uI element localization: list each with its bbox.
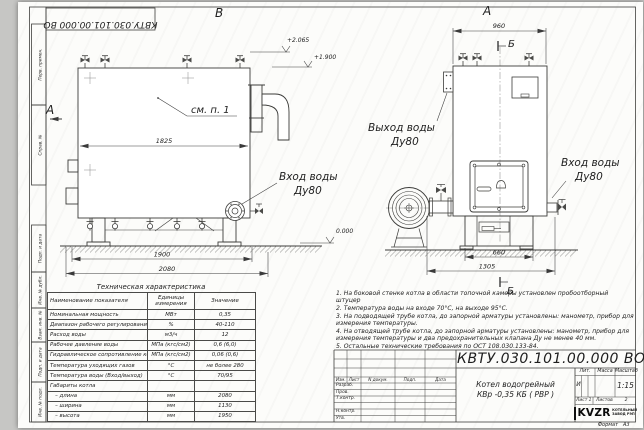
- doc-number: КВТУ.030.101.00.000 ВО: [457, 352, 635, 366]
- note-line: 4. На отводящей трубе котла, до запорной…: [336, 328, 634, 342]
- spec-row: – высотамм1950: [48, 411, 256, 421]
- spec-row: Номинальная мощностьМВт0,35: [48, 310, 256, 320]
- role-nkontr: Н.контр.: [336, 410, 361, 414]
- lit-header: Лит.: [575, 370, 595, 375]
- role-utv: Утв.: [336, 417, 361, 421]
- change-header-list: Лист: [348, 378, 361, 382]
- spec-row: Гидравлическое сопротивление котлаМПа (к…: [48, 350, 256, 360]
- format-label: Формат: [592, 423, 618, 428]
- logo-text: KVZR: [577, 407, 610, 419]
- front-view-valves: [459, 54, 534, 66]
- section-mark-b-top: Б: [508, 39, 515, 50]
- margin-label: Инв. № дубл.: [38, 275, 44, 304]
- change-header-izm: Изм.: [335, 378, 348, 382]
- scale-header: Масштаб: [615, 370, 636, 375]
- margin-label: Подп. и дата: [38, 234, 44, 264]
- format-value: А3: [623, 423, 635, 428]
- side-view: [66, 68, 289, 246]
- role-razrab: Разраб.: [336, 384, 361, 388]
- spec-row: Диапазон рабочего регулирования%40-110: [48, 320, 256, 330]
- note-line: 1. На боковой стенке котла в области топ…: [336, 290, 634, 304]
- elevation-0000: 0.000: [336, 228, 353, 235]
- callout-see-p1: см. п. 1: [191, 105, 230, 116]
- technical-notes: 1. На боковой стенке котла в области топ…: [336, 290, 634, 352]
- spec-row: – длинамм2080: [48, 391, 256, 401]
- dim-1825: 1825: [156, 137, 173, 145]
- inlet-label-side-2: Ду80: [293, 185, 322, 197]
- note-line: 3. На подводящей трубе котла, до запорно…: [336, 313, 634, 327]
- change-header-podp: Подп.: [396, 378, 425, 382]
- spec-col-header: Значение: [195, 293, 256, 310]
- scale-value: 1:15: [615, 382, 636, 390]
- margin-label: Взам. инв. №: [38, 310, 44, 340]
- spec-col-header: Единицы измерения: [148, 293, 195, 310]
- change-header-data: Дата: [426, 378, 456, 382]
- dim-960: 960: [493, 22, 505, 30]
- margin-label: Инв. № подл.: [38, 387, 44, 417]
- dim-1305: 1305: [479, 263, 496, 271]
- spec-row: Рабочее давление водыМПа (кгс/см2)0,6 (6…: [48, 340, 256, 350]
- engineering-drawing-sheet: Перв. примен. Справ. № Подп. и дата Инв.…: [0, 0, 644, 430]
- sheets-value: 2: [618, 399, 634, 404]
- spec-row: Габариты котла: [48, 381, 256, 391]
- inlet-label-front-1: Вход воды: [561, 157, 620, 169]
- dim-2080: 2080: [159, 265, 176, 273]
- inlet-label-front-2: Ду80: [574, 171, 603, 183]
- logo-bars-icon: [574, 407, 576, 420]
- spec-col-header: Наименование показателя: [48, 293, 148, 310]
- role-prov: Пров.: [336, 391, 361, 395]
- margin-label: Подп. и дата: [38, 347, 44, 377]
- lit-value: И: [575, 382, 582, 388]
- note-line: 2. Температура воды на входе 70°С, на вы…: [336, 305, 634, 312]
- spec-table-body: Номинальная мощностьМВт0,35Диапазон рабо…: [48, 310, 256, 422]
- front-view: [386, 47, 566, 249]
- sheets-label: Листов: [596, 399, 611, 404]
- outlet-label-1: Выход воды: [368, 122, 435, 134]
- inlet-label-side-1: Вход воды: [279, 171, 338, 183]
- view-label-a: А: [482, 4, 491, 18]
- corner-stamp-text: КВТУ.030.101.00.000 ВО: [43, 19, 157, 29]
- note-line: 5. Остальные технические требования по О…: [336, 343, 634, 350]
- spec-table-title: Техническая характеристика: [47, 283, 255, 292]
- role-tkontr: Т.контр.: [336, 397, 361, 401]
- view-label-b: В: [215, 6, 223, 20]
- change-header-docnum: N докум.: [362, 378, 395, 382]
- spec-row: – ширинамм1130: [48, 401, 256, 411]
- product-name-line2: КВр -0,35 КБ ( РВР ): [457, 391, 574, 399]
- spec-row: Температура воды (Вход/выход)°С70/95: [48, 371, 256, 381]
- ground-line-right: [385, 250, 578, 257]
- dim-1900: 1900: [154, 251, 171, 259]
- sheet-label: Лист: [576, 399, 587, 404]
- dim-660: 660: [493, 249, 505, 257]
- margin-label: Справ. №: [38, 134, 44, 155]
- company-logo: KVZR КОТЕЛЬНЫЙ ЗАВОД РЭП: [575, 405, 636, 422]
- outlet-label-2: Ду80: [390, 136, 419, 148]
- elevation-1900: +1.900: [314, 54, 336, 61]
- product-name-line1: Котел водогрейный: [457, 381, 574, 389]
- spec-table: Техническая характеристика Наименование …: [47, 283, 255, 422]
- company-name-line2: ЗАВОД РЭП: [612, 413, 637, 417]
- margin-label: Перв. примен.: [38, 48, 44, 80]
- spec-row: Температура уходящих газов°Сне более 280: [48, 360, 256, 370]
- sheet-value: 1: [587, 399, 593, 404]
- spec-row: Расход водым3/ч12: [48, 330, 256, 340]
- margin-labels: Перв. примен. Справ. № Подп. и дата Инв.…: [38, 48, 44, 416]
- elevation-2065: +2.065: [287, 37, 309, 44]
- ground-line-left: [60, 246, 322, 253]
- section-label-a: А: [45, 103, 54, 117]
- mass-header: Масса: [595, 370, 615, 375]
